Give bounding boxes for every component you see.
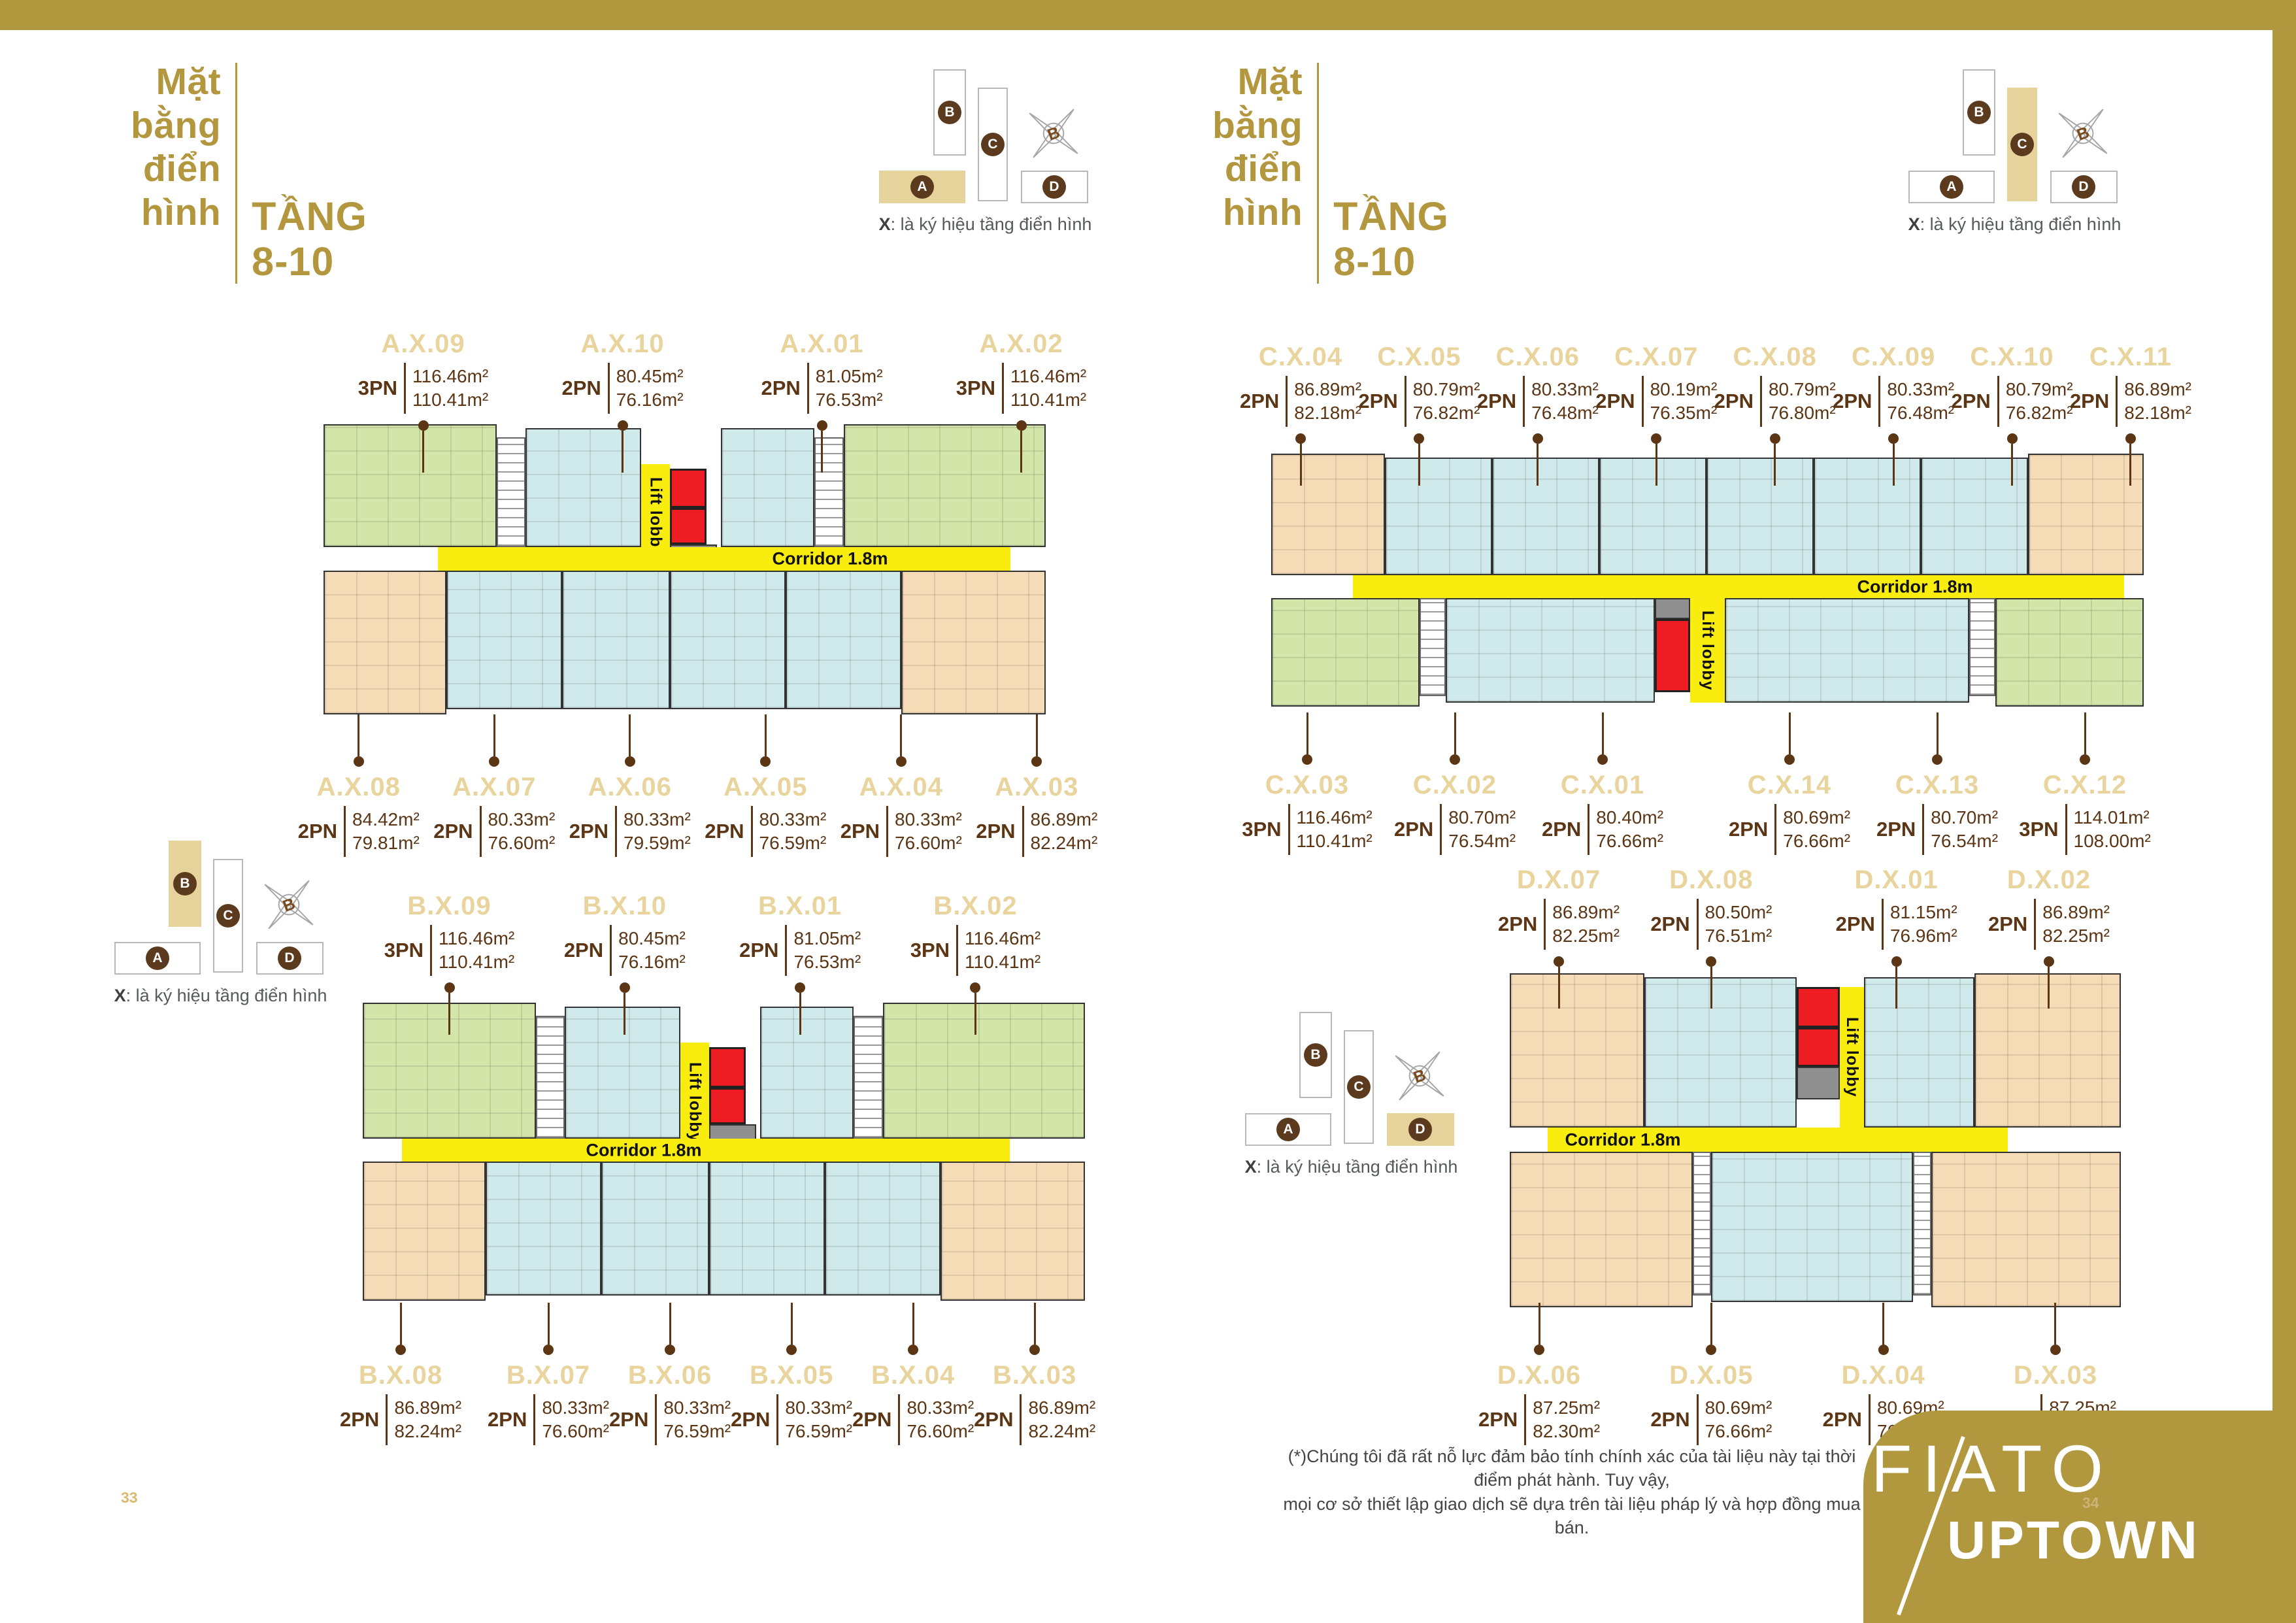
unit-block <box>1271 598 1420 707</box>
unit-areas: 80.79m² 76.80m² <box>1769 378 1836 426</box>
unit-area-net: 82.24m² <box>1031 831 1098 855</box>
unit-area-gross: 87.25m² <box>1533 1396 1600 1420</box>
unit-bedrooms: 3PN <box>956 376 995 400</box>
label-divider <box>430 925 432 976</box>
unit-area-gross: 80.69m² <box>1783 806 1850 829</box>
unit-area-gross: 86.89m² <box>2042 901 2110 924</box>
label-divider <box>1997 376 1999 427</box>
unit-bedrooms: 3PN <box>2019 818 2058 841</box>
callout-line <box>1784 712 1795 765</box>
unit-block <box>562 571 670 709</box>
key-plan-caption: X: là ký hiệu tầng điển hình <box>850 214 1121 235</box>
unit-area-net: 76.54m² <box>1931 829 1998 853</box>
callout-line <box>489 714 499 767</box>
unit-areas: 80.40m² 76.66m² <box>1596 806 1663 854</box>
unit-block <box>446 571 562 709</box>
callout-line <box>970 982 980 1035</box>
callout-line <box>2007 433 2018 486</box>
corridor-label: Corridor 1.8m <box>752 549 908 569</box>
unit-areas: 80.33m² 76.60m² <box>488 808 556 856</box>
unit-block <box>363 1162 486 1301</box>
unit-id: C.X.03 <box>1265 771 1349 799</box>
stair-core <box>1913 1152 1931 1296</box>
label-divider <box>615 806 617 857</box>
callout-line <box>1651 433 1661 486</box>
callout-line <box>618 420 628 473</box>
unit-info: 2PN 80.79m² 76.80m² <box>1714 376 1836 427</box>
unit-labels-b-bottom: B.X.08 2PN 86.89m² 82.24m² B.X.07 2PN 80… <box>340 1303 1059 1445</box>
unit-area-net: 76.53m² <box>816 388 883 412</box>
unit-info: 2PN 87.25m² 82.30m² <box>1478 1394 1600 1445</box>
unit-areas: 116.46m² 110.41m² <box>1010 365 1086 412</box>
unit-bedrooms: 2PN <box>1498 912 1537 936</box>
unit-bedrooms: 2PN <box>1650 1408 1689 1431</box>
unit-area-gross: 80.40m² <box>1596 806 1663 829</box>
unit-bedrooms: 2PN <box>1394 818 1433 841</box>
unit-area-net: 76.53m² <box>793 950 861 974</box>
unit-label: C.X.04 2PN 86.89m² 82.18m² <box>1242 343 1359 486</box>
unit-bedrooms: 2PN <box>1729 818 1768 841</box>
unit-areas: 81.05m² 76.53m² <box>793 927 861 975</box>
key-plan-block-a: B B C A D X: là ký hiệu tầng điển hình <box>876 51 1095 242</box>
callout-line <box>2080 712 2090 765</box>
unit-area-net: 76.59m² <box>663 1420 731 1443</box>
unit-block <box>324 571 446 714</box>
corridor: Corridor 1.8m <box>402 1139 1010 1162</box>
unit-label: B.X.08 2PN 86.89m² 82.24m² <box>340 1303 461 1445</box>
unit-area-net: 76.35m² <box>1650 401 1718 425</box>
callout-line <box>1029 1303 1040 1355</box>
unit-area-gross: 86.89m² <box>1294 378 1361 401</box>
corridor: Corridor 1.8m <box>1353 575 2124 598</box>
logo-uptown: UPTOWN <box>1947 1514 2200 1567</box>
unit-areas: 84.42m² 79.81m² <box>352 808 420 856</box>
unit-area-net: 76.96m² <box>1890 924 1957 948</box>
unit-bedrooms: 2PN <box>433 820 473 843</box>
unit-label: B.X.06 2PN 80.33m² 76.59m² <box>609 1303 731 1445</box>
unit-bedrooms: 2PN <box>564 939 603 962</box>
unit-areas: 80.33m² 76.59m² <box>663 1396 731 1444</box>
unit-info: 2PN 86.89m² 82.18m² <box>2070 376 2191 427</box>
unit-info: 2PN 80.33m² 76.60m² <box>840 806 962 857</box>
unit-area-net: 110.41m² <box>412 388 488 412</box>
unit-area-net: 76.60m² <box>895 831 962 855</box>
unit-bedrooms: 2PN <box>705 820 744 843</box>
corridor: Corridor 1.8m <box>438 547 1010 571</box>
legal-footnote: (*)Chúng tôi đã rất nỗ lực đảm bảo tính … <box>1274 1445 1869 1540</box>
unit-info: 2PN 80.50m² 76.51m² <box>1650 899 1772 950</box>
label-divider <box>1020 1394 1022 1445</box>
unit-bedrooms: 2PN <box>1240 390 1279 413</box>
unit-areas: 80.33m² 76.59m² <box>785 1396 852 1444</box>
unit-info: 2PN 80.33m² 79.59m² <box>569 806 691 857</box>
unit-area-gross: 116.46m² <box>1010 365 1086 388</box>
callout-line <box>1770 433 1780 486</box>
unit-label: D.X.08 2PN 80.50m² 76.51m² <box>1642 866 1780 1009</box>
unit-area-net: 110.41m² <box>965 950 1040 974</box>
unit-id: C.X.02 <box>1413 771 1497 799</box>
unit-areas: 80.69m² 76.66m² <box>1705 1396 1772 1444</box>
callout-line <box>908 1303 918 1355</box>
label-divider <box>1697 1394 1699 1445</box>
unit-area-gross: 80.33m² <box>663 1396 731 1420</box>
block-d-badge: D <box>1042 175 1066 199</box>
callout-line <box>1706 1303 1716 1355</box>
unit-area-net: 110.41m² <box>1297 829 1373 853</box>
unit-area-gross: 116.46m² <box>439 927 514 950</box>
unit-area-net: 76.66m² <box>1783 829 1850 853</box>
unit-label: A.X.10 2PN 80.45m² 76.16m² <box>552 330 693 473</box>
compass-icon: B <box>1388 1045 1451 1107</box>
unit-info: 2PN 80.33m² 76.60m² <box>852 1394 974 1445</box>
unit-area-gross: 80.69m² <box>1705 1396 1772 1420</box>
unit-area-net: 82.30m² <box>1533 1420 1600 1443</box>
unit-id: D.X.03 <box>2014 1362 2097 1389</box>
unit-bedrooms: 3PN <box>384 939 424 962</box>
unit-info: 2PN 80.33m² 76.48m² <box>1477 376 1599 427</box>
unit-label: A.X.02 3PN 116.46m² 110.41m² <box>951 330 1091 473</box>
label-divider <box>886 806 888 857</box>
unit-label: D.X.02 2PN 86.89m² 82.25m² <box>1980 866 2118 1009</box>
compass-icon: B <box>1022 102 1085 165</box>
unit-areas: 116.46m² 110.41m² <box>1297 806 1373 854</box>
unit-areas: 86.89m² 82.24m² <box>1028 1396 1095 1444</box>
unit-label: B.X.07 2PN 80.33m² 76.60m² <box>488 1303 609 1445</box>
unit-info: 2PN 80.33m² 76.60m² <box>433 806 555 857</box>
label-divider <box>404 363 406 414</box>
unit-bedrooms: 2PN <box>1823 1408 1862 1431</box>
block-d-badge: D <box>2072 175 2095 199</box>
unit-area-gross: 86.89m² <box>394 1396 461 1420</box>
unit-area-gross: 80.50m² <box>1705 901 1772 924</box>
unit-bedrooms: 2PN <box>1478 1408 1518 1431</box>
unit-areas: 80.70m² 76.54m² <box>1931 806 1998 854</box>
unit-areas: 80.50m² 76.51m² <box>1705 901 1772 948</box>
unit-label: A.X.04 2PN 80.33m² 76.60m² <box>833 714 969 857</box>
unit-info: 3PN 114.01m² 108.00m² <box>2019 804 2151 855</box>
unit-id: B.X.03 <box>993 1362 1076 1389</box>
key-plan-block-c: B B C A D X: là ký hiệu tầng điển hình <box>1905 51 2124 242</box>
block-a-badge: A <box>1276 1118 1300 1141</box>
label-divider <box>608 363 610 414</box>
unit-areas: 80.33m² 76.48m² <box>1531 378 1599 426</box>
unit-label: C.X.10 2PN 80.79m² 76.82m² <box>1954 343 2071 486</box>
page-title-right: Mặt bằng điển hình TẦNG 8-10 <box>1212 60 1449 284</box>
unit-id: C.X.06 <box>1496 343 1580 371</box>
unit-bedrooms: 2PN <box>731 1408 770 1431</box>
lift-shaft <box>709 1088 746 1124</box>
unit-area-net: 76.60m² <box>542 1420 609 1443</box>
unit-id: C.X.12 <box>2043 771 2127 799</box>
callout-line <box>1533 433 1543 486</box>
unit-bedrooms: 2PN <box>1358 390 1397 413</box>
title-divider <box>235 63 237 284</box>
lift-shaft <box>1655 619 1690 692</box>
stair-core <box>1420 598 1446 696</box>
unit-id: C.X.07 <box>1614 343 1698 371</box>
unit-label: B.X.04 2PN 80.33m² 76.60m² <box>852 1303 974 1445</box>
unit-areas: 80.79m² 76.82m² <box>2006 378 2073 426</box>
unit-area-gross: 80.70m² <box>1448 806 1516 829</box>
callout-line <box>1878 1303 1889 1355</box>
unit-id: A.X.01 <box>780 330 863 358</box>
callout-line <box>418 420 429 473</box>
unit-area-gross: 80.79m² <box>2006 378 2073 401</box>
corridor-label: Corridor 1.8m <box>1837 577 1993 597</box>
callout-line <box>896 714 907 767</box>
block-a-badge: A <box>910 175 934 199</box>
unit-bedrooms: 2PN <box>340 1408 379 1431</box>
unit-label: C.X.13 2PN 80.70m² 76.54m² <box>1872 712 2003 855</box>
unit-area-net: 76.59m² <box>785 1420 852 1443</box>
top-gold-bar <box>0 0 2296 30</box>
unit-info: 2PN 86.89m² 82.25m² <box>1498 899 1620 950</box>
label-divider <box>1697 899 1699 950</box>
unit-id: D.X.01 <box>1855 866 1938 894</box>
unit-label: A.X.07 2PN 80.33m² 76.60m² <box>427 714 563 857</box>
unit-area-net: 82.24m² <box>1028 1420 1095 1443</box>
unit-area-net: 76.48m² <box>1531 401 1599 425</box>
block-c-badge: C <box>981 133 1005 156</box>
unit-info: 2PN 80.45m² 76.16m² <box>564 925 686 976</box>
unit-label: B.X.02 3PN 116.46m² 110.41m² <box>905 892 1046 1035</box>
callout-line <box>1706 956 1716 1009</box>
callout-line <box>2044 956 2054 1009</box>
unit-id: B.X.09 <box>407 892 491 920</box>
title-divider <box>1317 63 1319 284</box>
callout-line <box>2050 1303 2061 1355</box>
label-divider <box>533 1394 535 1445</box>
compass-icon: B <box>2052 102 2114 165</box>
callout-line <box>1891 956 1902 1009</box>
unit-info: 2PN 80.69m² 76.66m² <box>1650 1394 1772 1445</box>
corridor: Corridor 1.8m <box>1548 1128 2008 1152</box>
unit-label: A.X.08 2PN 84.42m² 79.81m² <box>291 714 427 857</box>
label-divider <box>1523 376 1525 427</box>
label-divider <box>898 1394 900 1445</box>
unit-areas: 80.33m² 76.59m² <box>759 808 827 856</box>
unit-id: A.X.10 <box>580 330 664 358</box>
lift-lobby: Lift lobby <box>1690 598 1725 703</box>
unit-id: B.X.08 <box>359 1362 442 1389</box>
label-divider <box>2116 376 2118 427</box>
block-a-badge: A <box>1940 175 1963 199</box>
unit-id: D.X.05 <box>1669 1362 1753 1389</box>
unit-block <box>1711 1152 1913 1302</box>
unit-id: C.X.10 <box>1970 343 2054 371</box>
unit-label: C.X.05 2PN 80.79m² 76.82m² <box>1360 343 1478 486</box>
label-divider <box>1002 363 1004 414</box>
unit-bedrooms: 2PN <box>852 1408 891 1431</box>
unit-label: C.X.14 2PN 80.69m² 76.66m² <box>1724 712 1855 855</box>
unit-area-gross: 81.05m² <box>793 927 861 950</box>
unit-area-gross: 80.33m² <box>1887 378 1954 401</box>
unit-areas: 86.89m² 82.18m² <box>2124 378 2191 426</box>
key-plan-caption: X: là ký hiệu tầng điển hình <box>85 986 356 1006</box>
unit-areas: 116.46m² 110.41m² <box>439 927 514 975</box>
label-divider <box>1642 376 1644 427</box>
unit-labels-b-top: B.X.09 3PN 116.46m² 110.41m² B.X.10 2PN … <box>379 892 1046 1035</box>
unit-area-net: 82.25m² <box>2042 924 2110 948</box>
unit-id: A.X.02 <box>979 330 1063 358</box>
unit-labels-a-bottom: A.X.08 2PN 84.42m² 79.81m² A.X.07 2PN 80… <box>291 714 1105 857</box>
unit-area-gross: 80.33m² <box>895 808 962 831</box>
unit-area-net: 76.82m² <box>1413 401 1480 425</box>
unit-label: A.X.03 2PN 86.89m² 82.24m² <box>969 714 1105 857</box>
unit-id: B.X.05 <box>750 1362 833 1389</box>
unit-area-gross: 80.70m² <box>1931 806 1998 829</box>
unit-block <box>1510 1152 1693 1307</box>
unit-id: B.X.10 <box>583 892 667 920</box>
unit-bedrooms: 3PN <box>910 939 950 962</box>
unit-info: 3PN 116.46m² 110.41m² <box>384 925 515 976</box>
label-divider <box>344 806 346 857</box>
logo-fiato: FIATO <box>1871 1435 2114 1502</box>
label-divider <box>776 1394 778 1445</box>
unit-bedrooms: 2PN <box>976 820 1015 843</box>
corridor-label: Corridor 1.8m <box>565 1140 722 1160</box>
unit-block <box>670 571 786 709</box>
unit-info: 2PN 80.33m² 76.59m² <box>705 806 826 857</box>
unit-label: C.X.02 2PN 80.70m² 76.54m² <box>1389 712 1520 855</box>
callout-line <box>2125 433 2136 486</box>
unit-areas: 81.05m² 76.53m² <box>816 365 883 412</box>
unit-labels-c-bottom: C.X.03 3PN 116.46m² 110.41m² C.X.02 2PN … <box>1242 712 2150 855</box>
label-divider <box>1022 806 1024 857</box>
unit-area-gross: 86.89m² <box>2124 378 2191 401</box>
unit-area-gross: 80.79m² <box>1413 378 1480 401</box>
label-divider <box>610 925 612 976</box>
unit-info: 3PN 116.46m² 110.41m² <box>358 363 489 414</box>
callout-line <box>786 1303 797 1355</box>
unit-area-gross: 80.33m² <box>785 1396 852 1420</box>
callout-line <box>1414 433 1424 486</box>
unit-block <box>709 1162 825 1296</box>
label-divider <box>1760 376 1762 427</box>
block-c-badge: C <box>216 904 240 928</box>
unit-area-gross: 114.01m² <box>2074 806 2151 829</box>
unit-area-net: 82.25m² <box>1552 924 1620 948</box>
unit-bedrooms: 2PN <box>2070 390 2109 413</box>
unit-info: 3PN 116.46m² 110.41m² <box>956 363 1087 414</box>
unit-area-net: 76.59m² <box>759 831 827 855</box>
block-b-badge: B <box>1304 1043 1327 1067</box>
compass-icon: B <box>258 873 320 936</box>
unit-id: B.X.07 <box>507 1362 590 1389</box>
unit-areas: 81.15m² 76.96m² <box>1890 901 1957 948</box>
unit-area-gross: 80.33m² <box>488 808 556 831</box>
unit-bedrooms: 2PN <box>569 820 608 843</box>
block-d-badge: D <box>1408 1118 1432 1141</box>
unit-info: 2PN 81.05m² 76.53m² <box>761 363 882 414</box>
unit-bedrooms: 3PN <box>358 376 397 400</box>
label-divider <box>1286 376 1288 427</box>
unit-id: A.X.06 <box>588 773 672 801</box>
label-divider <box>807 363 809 414</box>
unit-area-net: 76.66m² <box>1705 1420 1772 1443</box>
callout-line <box>395 1303 406 1355</box>
unit-area-gross: 116.46m² <box>965 927 1040 950</box>
label-divider <box>1882 899 1884 950</box>
label-divider <box>386 1394 388 1445</box>
unit-areas: 80.19m² 76.35m² <box>1650 378 1718 426</box>
unit-bedrooms: 2PN <box>1833 390 1872 413</box>
unit-id: A.X.03 <box>995 773 1078 801</box>
unit-areas: 114.01m² 108.00m² <box>2074 806 2151 854</box>
unit-areas: 80.33m² 76.60m² <box>542 1396 609 1444</box>
unit-area-gross: 80.45m² <box>618 927 686 950</box>
lift-shaft <box>670 508 707 544</box>
unit-area-gross: 80.33m² <box>624 808 691 831</box>
unit-areas: 80.69m² 76.66m² <box>1783 806 1850 854</box>
unit-info: 2PN 80.70m² 76.54m² <box>1876 804 1998 855</box>
unit-area-gross: 80.45m² <box>616 365 684 388</box>
label-divider <box>785 925 787 976</box>
unit-info: 2PN 80.79m² 76.82m² <box>1952 376 2073 427</box>
unit-block <box>486 1162 601 1296</box>
unit-area-net: 76.66m² <box>1596 829 1663 853</box>
callout-line <box>354 714 364 767</box>
unit-id: B.X.02 <box>933 892 1017 920</box>
unit-area-gross: 81.05m² <box>816 365 883 388</box>
unit-id: D.X.08 <box>1669 866 1753 894</box>
unit-areas: 86.89m² 82.25m² <box>1552 901 1620 948</box>
unit-bedrooms: 2PN <box>974 1408 1013 1431</box>
unit-id: C.X.14 <box>1748 771 1831 799</box>
unit-areas: 80.45m² 76.16m² <box>618 927 686 975</box>
callout-line <box>1888 433 1899 486</box>
unit-area-gross: 86.89m² <box>1031 808 1098 831</box>
unit-labels-a-top: A.X.09 3PN 116.46m² 110.41m² A.X.10 2PN … <box>353 330 1091 473</box>
brand-logo-block: FIATO UPTOWN 34 <box>1863 1411 2296 1623</box>
unit-areas: 86.89m² 82.24m² <box>1031 808 1098 856</box>
unit-bedrooms: 2PN <box>561 376 601 400</box>
key-plan-block-d: B B C A D X: là ký hiệu tầng điển hình <box>1242 994 1461 1184</box>
page-number-right: 34 <box>2082 1494 2099 1512</box>
unit-area-net: 76.51m² <box>1705 924 1772 948</box>
callout-line <box>1016 420 1027 473</box>
callout-line <box>665 1303 675 1355</box>
unit-label: B.X.03 2PN 86.89m² 82.24m² <box>974 1303 1095 1445</box>
right-gold-bar <box>2272 0 2296 1623</box>
unit-id: A.X.04 <box>859 773 943 801</box>
callout-line <box>625 714 635 767</box>
unit-bedrooms: 2PN <box>761 376 800 400</box>
callout-line <box>1450 712 1460 765</box>
label-divider <box>1440 804 1442 855</box>
label-divider <box>1405 376 1406 427</box>
label-divider <box>1544 899 1546 950</box>
unit-id: C.X.05 <box>1377 343 1461 371</box>
unit-block <box>786 571 901 709</box>
unit-area-net: 79.81m² <box>352 831 420 855</box>
unit-bedrooms: 2PN <box>739 939 778 962</box>
label-divider <box>1878 376 1880 427</box>
key-plan-caption: X: là ký hiệu tầng điển hình <box>1216 1157 1487 1177</box>
unit-label: A.X.09 3PN 116.46m² 110.41m² <box>353 330 493 473</box>
label-divider <box>751 806 753 857</box>
page-number-left: 33 <box>121 1489 138 1507</box>
unit-block <box>940 1162 1085 1301</box>
unit-info: 2PN 80.33m² 76.59m² <box>731 1394 852 1445</box>
unit-bedrooms: 2PN <box>1714 390 1754 413</box>
unit-area-net: 76.60m² <box>907 1420 974 1443</box>
unit-areas: 80.33m² 76.60m² <box>907 1396 974 1444</box>
unit-area-net: 79.59m² <box>624 831 691 855</box>
unit-area-net: 76.82m² <box>2006 401 2073 425</box>
unit-id: A.X.05 <box>724 773 807 801</box>
floor-range: TẦNG 8-10 <box>252 194 367 284</box>
